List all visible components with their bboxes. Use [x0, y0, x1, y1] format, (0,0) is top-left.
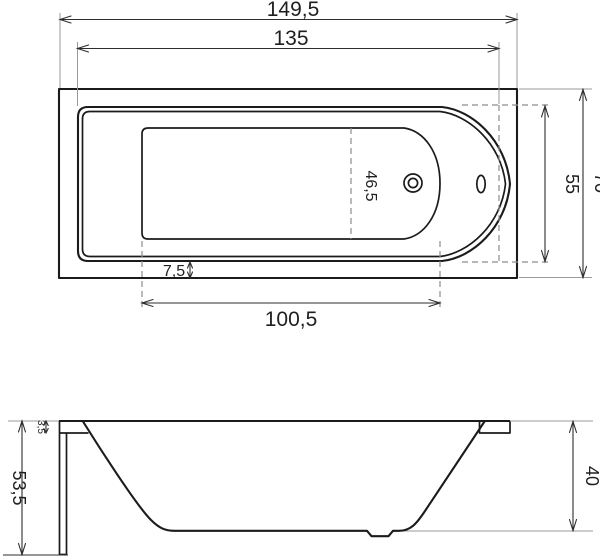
- dim-label-overall-height: 53,5: [9, 470, 29, 505]
- dim-inner-depth: 40: [570, 422, 600, 531]
- tub-floor-outline: [142, 128, 440, 239]
- dim-label-rim-lip-thickness: 3,5: [35, 420, 46, 434]
- tub-outer-edge: [59, 89, 517, 278]
- drain-outer-circle: [404, 174, 422, 192]
- side-view: 53,5 3,5 40: [3, 420, 600, 555]
- technical-drawing-page: 149,5 135 70 55 46,5: [0, 0, 600, 558]
- overflow-hole: [477, 175, 485, 192]
- tub-rim-inner: [83, 112, 506, 257]
- dim-opening-width: 55: [542, 106, 583, 262]
- dim-rim-lip-thickness: 3,5: [35, 420, 48, 434]
- dim-label-opening-width: 55: [562, 174, 582, 194]
- dim-rim-length: 135: [78, 27, 500, 106]
- dim-label-inner-depth: 40: [582, 466, 600, 486]
- dim-label-rim-offset: 7,5: [163, 263, 185, 280]
- dim-label-floor-width: 46,5: [362, 170, 379, 201]
- dim-label-floor-length: 100,5: [265, 308, 318, 331]
- top-view: 149,5 135 70 55 46,5: [59, 0, 600, 331]
- bathtub-drawing-svg: 149,5 135 70 55 46,5: [0, 0, 600, 558]
- dim-label-overall-length: 149,5: [267, 0, 320, 21]
- apron-panel: [60, 421, 67, 555]
- drain-inner-circle: [408, 178, 417, 187]
- dim-label-overall-width: 70: [591, 173, 600, 193]
- tub-shell-profile: [83, 422, 485, 537]
- dim-overall-height: 53,5: [9, 421, 29, 555]
- dim-floor-length: 100,5: [142, 300, 440, 332]
- dim-label-rim-length: 135: [273, 27, 308, 50]
- dim-overall-width: 70: [519, 89, 600, 278]
